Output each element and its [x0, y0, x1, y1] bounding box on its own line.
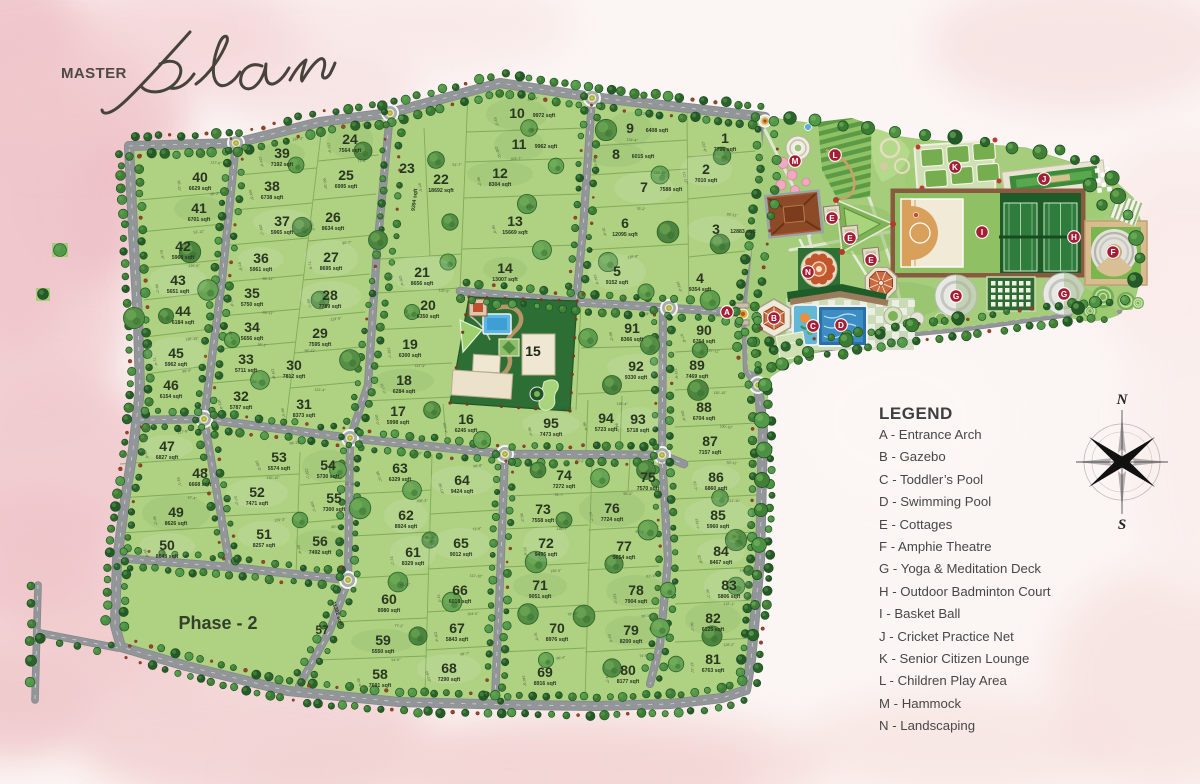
svg-text:6125 sqft: 6125 sqft — [702, 627, 725, 633]
svg-text:29: 29 — [312, 325, 328, 341]
svg-text:8200 sqft: 8200 sqft — [620, 639, 643, 645]
svg-text:6245 sqft: 6245 sqft — [455, 428, 478, 434]
svg-text:D - Swimming Pool: D - Swimming Pool — [879, 494, 991, 509]
svg-text:6018 sqft: 6018 sqft — [449, 599, 472, 605]
svg-text:8976 sqft: 8976 sqft — [546, 637, 569, 643]
svg-text:N: N — [805, 268, 811, 277]
svg-text:M: M — [792, 157, 799, 166]
svg-text:60: 60 — [381, 591, 397, 607]
svg-text:34: 34 — [244, 319, 260, 335]
svg-text:8695 sqft: 8695 sqft — [320, 266, 343, 272]
svg-text:J - Cricket Practice Net: J - Cricket Practice Net — [879, 629, 1014, 644]
svg-text:9354 sqft: 9354 sqft — [689, 287, 712, 293]
svg-text:47: 47 — [159, 438, 175, 454]
svg-text:5961 sqft: 5961 sqft — [250, 267, 273, 273]
svg-text:8257 sqft: 8257 sqft — [253, 543, 276, 549]
svg-text:11: 11 — [512, 136, 527, 152]
svg-text:6350 sqft: 6350 sqft — [417, 314, 440, 320]
svg-text:112'-4": 112'-4" — [314, 388, 326, 393]
svg-text:61: 61 — [405, 544, 421, 560]
svg-text:42: 42 — [175, 238, 191, 254]
svg-text:90: 90 — [696, 322, 712, 338]
svg-text:41: 41 — [191, 200, 207, 216]
svg-text:50: 50 — [159, 537, 175, 553]
svg-text:9: 9 — [626, 120, 634, 136]
svg-text:92: 92 — [628, 358, 644, 374]
svg-text:13: 13 — [507, 213, 523, 229]
svg-text:A: A — [724, 308, 730, 317]
svg-text:18692 sqft: 18692 sqft — [428, 188, 454, 194]
svg-text:6154 sqft: 6154 sqft — [160, 394, 183, 400]
svg-text:5806 sqft: 5806 sqft — [718, 594, 741, 600]
svg-text:G - Yoga & Meditation Deck: G - Yoga & Meditation Deck — [879, 561, 1041, 576]
svg-text:31: 31 — [296, 396, 312, 412]
svg-text:6860 sqft: 6860 sqft — [705, 486, 728, 492]
svg-text:N - Landscaping: N - Landscaping — [879, 718, 975, 733]
svg-text:8626 sqft: 8626 sqft — [165, 521, 188, 527]
svg-text:6763 sqft: 6763 sqft — [702, 668, 725, 674]
svg-text:94'-1": 94'-1" — [635, 530, 645, 535]
svg-text:5574 sqft: 5574 sqft — [268, 466, 291, 472]
svg-text:135'-5": 135'-5" — [550, 569, 562, 574]
svg-text:128'-2": 128'-2" — [723, 643, 735, 647]
svg-text:75'-2": 75'-2" — [636, 207, 646, 211]
svg-text:8980 sqft: 8980 sqft — [378, 608, 401, 614]
svg-text:7570 sqft: 7570 sqft — [637, 486, 660, 492]
svg-text:111'-11": 111'-11" — [728, 499, 741, 503]
svg-text:94: 94 — [598, 410, 614, 426]
svg-text:9654 sqft: 9654 sqft — [613, 555, 636, 561]
svg-text:86: 86 — [708, 469, 724, 485]
svg-text:74'-8": 74'-8" — [639, 654, 649, 659]
svg-text:71'-6": 71'-6" — [357, 159, 367, 163]
svg-text:6329 sqft: 6329 sqft — [389, 477, 412, 483]
svg-text:6738 sqft: 6738 sqft — [261, 195, 284, 201]
svg-text:24: 24 — [342, 131, 358, 147]
svg-text:H: H — [1071, 233, 1077, 242]
svg-text:80: 80 — [620, 662, 636, 678]
svg-text:20: 20 — [420, 297, 436, 313]
svg-text:5550 sqft: 5550 sqft — [372, 649, 395, 655]
svg-text:9012 sqft: 9012 sqft — [450, 552, 473, 558]
svg-text:10: 10 — [509, 105, 525, 121]
svg-text:9962 sqft: 9962 sqft — [535, 144, 558, 150]
svg-text:46: 46 — [163, 377, 179, 393]
svg-text:E: E — [829, 214, 835, 223]
svg-text:50'-11": 50'-11" — [726, 461, 738, 466]
svg-text:25: 25 — [338, 167, 354, 183]
svg-text:108'-3": 108'-3" — [416, 499, 428, 503]
svg-text:5960 sqft: 5960 sqft — [707, 524, 730, 530]
svg-text:K: K — [952, 163, 958, 172]
svg-text:51: 51 — [256, 526, 272, 542]
svg-text:16: 16 — [458, 411, 474, 427]
svg-text:72: 72 — [538, 535, 554, 551]
svg-text:66: 66 — [452, 582, 468, 598]
svg-text:122'-10": 122'-10" — [653, 171, 667, 175]
svg-text:79: 79 — [623, 622, 639, 638]
svg-text:M - Hammock: M - Hammock — [879, 696, 961, 711]
svg-text:7290 sqft: 7290 sqft — [438, 677, 461, 683]
svg-text:136'-7": 136'-7" — [556, 527, 568, 531]
svg-text:129'-3": 129'-3" — [274, 518, 286, 523]
svg-text:7812 sqft: 7812 sqft — [283, 374, 306, 380]
svg-text:7789 sqft: 7789 sqft — [319, 304, 342, 310]
svg-text:8656 sqft: 8656 sqft — [411, 281, 434, 287]
svg-text:91: 91 — [624, 320, 640, 336]
svg-text:39: 39 — [274, 145, 290, 161]
svg-text:57: 57 — [315, 623, 329, 637]
svg-text:L: L — [832, 151, 837, 160]
svg-text:B: B — [771, 314, 777, 323]
svg-text:77: 77 — [616, 538, 632, 554]
svg-text:45: 45 — [168, 345, 184, 361]
svg-text:I: I — [981, 228, 983, 237]
svg-text:22: 22 — [433, 171, 449, 187]
svg-text:7473 sqft: 7473 sqft — [540, 432, 563, 438]
svg-text:7469 sqft: 7469 sqft — [686, 374, 709, 380]
svg-text:7: 7 — [640, 179, 648, 195]
svg-text:8373 sqft: 8373 sqft — [293, 413, 316, 419]
svg-text:80'-5": 80'-5" — [331, 525, 341, 529]
svg-text:D: D — [838, 321, 844, 330]
svg-text:89: 89 — [689, 357, 705, 373]
svg-text:9051 sqft: 9051 sqft — [529, 594, 552, 600]
svg-text:5962 sqft: 5962 sqft — [165, 362, 188, 368]
svg-text:111'-4": 111'-4" — [415, 364, 427, 369]
svg-text:84: 84 — [713, 543, 729, 559]
svg-text:6704 sqft: 6704 sqft — [693, 416, 716, 422]
svg-text:3: 3 — [712, 221, 720, 237]
svg-text:4: 4 — [696, 270, 704, 286]
svg-text:8648 sqft: 8648 sqft — [156, 554, 179, 560]
svg-text:19: 19 — [402, 336, 418, 352]
svg-text:64: 64 — [454, 472, 470, 488]
svg-text:21: 21 — [414, 264, 430, 280]
svg-text:6015 sqft: 6015 sqft — [632, 154, 655, 160]
svg-text:5787 sqft: 5787 sqft — [230, 405, 253, 411]
svg-text:5: 5 — [613, 263, 621, 279]
svg-text:27: 27 — [323, 249, 339, 265]
svg-text:7010 sqft: 7010 sqft — [695, 178, 718, 184]
svg-text:Phase - 2: Phase - 2 — [178, 613, 257, 633]
svg-text:18: 18 — [396, 372, 412, 388]
svg-text:84'-2": 84'-2" — [647, 350, 657, 355]
svg-text:5718 sqft: 5718 sqft — [627, 428, 650, 434]
svg-text:17: 17 — [390, 403, 406, 419]
svg-text:B - Gazebo: B - Gazebo — [879, 449, 946, 464]
svg-text:52: 52 — [249, 484, 265, 500]
svg-text:5968 sqft: 5968 sqft — [172, 255, 195, 261]
svg-text:C: C — [810, 322, 816, 331]
svg-text:128'-4": 128'-4" — [616, 402, 628, 407]
svg-text:12095 sqft: 12095 sqft — [612, 232, 638, 238]
svg-text:82'-7": 82'-7" — [252, 380, 262, 384]
svg-text:94'-6": 94'-6" — [391, 658, 401, 662]
svg-text:32: 32 — [233, 388, 249, 404]
svg-text:69: 69 — [537, 664, 553, 680]
svg-text:G: G — [1061, 290, 1067, 299]
svg-text:93: 93 — [630, 411, 646, 427]
svg-text:130'-10": 130'-10" — [713, 391, 727, 395]
svg-text:6701 sqft: 6701 sqft — [188, 217, 211, 223]
svg-text:95: 95 — [543, 415, 559, 431]
svg-text:58: 58 — [372, 666, 388, 682]
svg-text:6827 sqft: 6827 sqft — [156, 455, 179, 461]
svg-text:5730 sqft: 5730 sqft — [317, 474, 340, 480]
svg-text:9972 sqft: 9972 sqft — [533, 113, 556, 119]
svg-text:5723 sqft: 5723 sqft — [595, 427, 618, 433]
svg-text:6300 sqft: 6300 sqft — [399, 353, 422, 359]
svg-text:J: J — [1042, 175, 1047, 184]
svg-text:62: 62 — [398, 507, 414, 523]
svg-text:5711 sqft: 5711 sqft — [235, 368, 257, 374]
svg-text:A - Entrance Arch: A - Entrance Arch — [879, 427, 982, 442]
svg-text:56'-1": 56'-1" — [732, 535, 742, 540]
svg-text:87: 87 — [702, 433, 718, 449]
svg-text:6284 sqft: 6284 sqft — [393, 389, 416, 395]
svg-text:26: 26 — [325, 209, 341, 225]
svg-text:59: 59 — [375, 632, 391, 648]
svg-text:7904 sqft: 7904 sqft — [625, 599, 648, 605]
svg-text:MASTER: MASTER — [61, 65, 127, 82]
svg-text:65: 65 — [453, 535, 469, 551]
svg-text:55: 55 — [326, 490, 342, 506]
svg-text:129'-7": 129'-7" — [642, 312, 654, 317]
svg-text:132'-1": 132'-1" — [723, 602, 735, 607]
svg-text:80'-2": 80'-2" — [575, 459, 585, 464]
svg-text:44: 44 — [175, 303, 191, 319]
svg-text:8467 sqft: 8467 sqft — [710, 560, 733, 566]
svg-text:82: 82 — [705, 610, 721, 626]
svg-text:6: 6 — [621, 215, 629, 231]
svg-text:7157 sqft: 7157 sqft — [699, 450, 722, 456]
svg-text:77'-2": 77'-2" — [394, 624, 404, 629]
svg-text:5998 sqft: 5998 sqft — [387, 420, 410, 426]
svg-text:7564 sqft: 7564 sqft — [339, 148, 362, 154]
svg-text:LEGEND: LEGEND — [879, 404, 953, 423]
svg-text:85'-11": 85'-11" — [263, 277, 275, 281]
svg-text:28: 28 — [322, 287, 338, 303]
svg-text:7471 sqft: 7471 sqft — [246, 501, 269, 507]
svg-text:9152 sqft: 9152 sqft — [606, 280, 629, 286]
svg-text:49: 49 — [168, 504, 184, 520]
svg-text:43: 43 — [170, 272, 186, 288]
svg-text:13007 sqft: 13007 sqft — [492, 277, 518, 283]
svg-text:69'-11": 69'-11" — [263, 311, 275, 316]
svg-text:9330 sqft: 9330 sqft — [625, 375, 648, 381]
svg-text:33: 33 — [238, 351, 254, 367]
svg-text:36: 36 — [253, 250, 269, 266]
svg-text:12: 12 — [492, 165, 508, 181]
svg-text:6629 sqft: 6629 sqft — [189, 186, 212, 192]
svg-text:81: 81 — [705, 651, 721, 667]
svg-text:71: 71 — [532, 577, 548, 593]
svg-text:23: 23 — [399, 160, 415, 176]
svg-text:129'-9": 129'-9" — [188, 264, 200, 268]
svg-text:8924 sqft: 8924 sqft — [395, 524, 418, 530]
svg-text:E: E — [868, 256, 874, 265]
svg-text:C - Toddler’s Pool: C - Toddler’s Pool — [879, 472, 983, 487]
svg-text:78: 78 — [628, 582, 644, 598]
svg-text:138'-7": 138'-7" — [387, 347, 392, 359]
svg-text:8634 sqft: 8634 sqft — [322, 226, 345, 232]
svg-text:103'-7": 103'-7" — [510, 157, 522, 161]
svg-text:30: 30 — [286, 357, 302, 373]
svg-text:73: 73 — [535, 501, 551, 517]
svg-text:130'-10": 130'-10" — [266, 476, 280, 480]
svg-text:68: 68 — [441, 660, 457, 676]
svg-text:E: E — [847, 234, 853, 243]
svg-text:48: 48 — [192, 465, 208, 481]
svg-text:40: 40 — [192, 169, 208, 185]
svg-text:8916 sqft: 8916 sqft — [534, 681, 557, 687]
svg-text:K - Senior Citizen Lounge: K - Senior Citizen Lounge — [879, 651, 1029, 666]
svg-text:7796 sqft: 7796 sqft — [714, 147, 737, 153]
svg-text:6764 sqft: 6764 sqft — [693, 339, 716, 345]
svg-text:H - Outdoor Badminton Court: H - Outdoor Badminton Court — [879, 584, 1051, 599]
svg-text:85: 85 — [710, 507, 726, 523]
svg-text:2: 2 — [702, 161, 710, 177]
svg-text:8304 sqft: 8304 sqft — [489, 182, 512, 188]
svg-text:51'-7": 51'-7" — [452, 163, 462, 167]
svg-text:I - Basket Ball: I - Basket Ball — [879, 606, 960, 621]
svg-text:97'-0": 97'-0" — [526, 205, 536, 209]
svg-text:63: 63 — [392, 460, 408, 476]
svg-text:113'-9": 113'-9" — [674, 368, 679, 380]
svg-text:7300 sqft: 7300 sqft — [323, 507, 346, 513]
svg-text:15: 15 — [525, 343, 541, 359]
svg-text:67: 67 — [449, 620, 465, 636]
svg-text:104'-5": 104'-5" — [467, 612, 479, 616]
svg-text:F - Amphie Theatre: F - Amphie Theatre — [879, 539, 992, 554]
svg-text:L - Children Play Area: L - Children Play Area — [879, 673, 1007, 688]
svg-text:7558 sqft: 7558 sqft — [532, 518, 555, 524]
svg-text:70: 70 — [549, 620, 565, 636]
svg-text:95'-11": 95'-11" — [305, 349, 317, 353]
svg-text:9495 sqft: 9495 sqft — [535, 552, 558, 558]
svg-text:E - Cottages: E - Cottages — [879, 517, 953, 532]
svg-text:G: G — [953, 292, 959, 301]
svg-text:8329 sqft: 8329 sqft — [402, 561, 425, 567]
svg-text:133'-2": 133'-2" — [527, 97, 539, 102]
svg-text:7595 sqft: 7595 sqft — [309, 342, 332, 348]
svg-text:14: 14 — [497, 260, 513, 276]
svg-text:5651 sqft: 5651 sqft — [167, 289, 190, 295]
svg-text:90'-7": 90'-7" — [342, 241, 352, 246]
svg-text:55'-0": 55'-0" — [623, 492, 633, 496]
svg-text:15669 sqft: 15669 sqft — [502, 230, 528, 236]
svg-text:7272 sqft: 7272 sqft — [553, 484, 576, 490]
svg-text:75: 75 — [640, 469, 656, 485]
svg-text:54: 54 — [320, 457, 336, 473]
svg-text:S: S — [1118, 517, 1126, 533]
svg-text:5843 sqft: 5843 sqft — [446, 637, 469, 643]
svg-text:83: 83 — [721, 577, 737, 593]
svg-text:7588 sqft: 7588 sqft — [660, 187, 683, 193]
svg-text:5656 sqft: 5656 sqft — [241, 336, 264, 342]
svg-text:5750 sqft: 5750 sqft — [241, 302, 264, 308]
svg-text:7691 sqft: 7691 sqft — [369, 683, 392, 689]
svg-text:35: 35 — [244, 285, 260, 301]
svg-text:7492 sqft: 7492 sqft — [309, 550, 332, 556]
svg-text:N: N — [1116, 392, 1129, 408]
svg-text:7724 sqft: 7724 sqft — [601, 517, 624, 523]
svg-text:6408 sqft: 6408 sqft — [646, 128, 669, 134]
svg-text:74: 74 — [556, 467, 572, 483]
svg-text:1: 1 — [721, 130, 729, 146]
svg-text:9424 sqft: 9424 sqft — [451, 489, 474, 495]
svg-text:63'-10": 63'-10" — [561, 407, 573, 411]
svg-text:6184 sqft: 6184 sqft — [172, 320, 195, 326]
svg-text:53: 53 — [271, 449, 287, 465]
svg-text:76: 76 — [604, 500, 620, 516]
svg-text:5965 sqft: 5965 sqft — [271, 230, 294, 236]
svg-text:7192 sqft: 7192 sqft — [271, 162, 294, 168]
svg-text:6668 sqft: 6668 sqft — [189, 482, 212, 488]
svg-text:37: 37 — [274, 213, 290, 229]
svg-text:8366 sqft: 8366 sqft — [621, 337, 644, 343]
svg-text:12883 sqft: 12883 sqft — [730, 229, 756, 235]
svg-text:56: 56 — [312, 533, 328, 549]
svg-text:8177 sqft: 8177 sqft — [617, 679, 640, 685]
svg-text:8: 8 — [612, 146, 620, 162]
svg-text:88: 88 — [696, 399, 712, 415]
svg-text:6995 sqft: 6995 sqft — [335, 184, 358, 190]
svg-text:F: F — [1110, 248, 1115, 257]
svg-text:38: 38 — [264, 178, 280, 194]
